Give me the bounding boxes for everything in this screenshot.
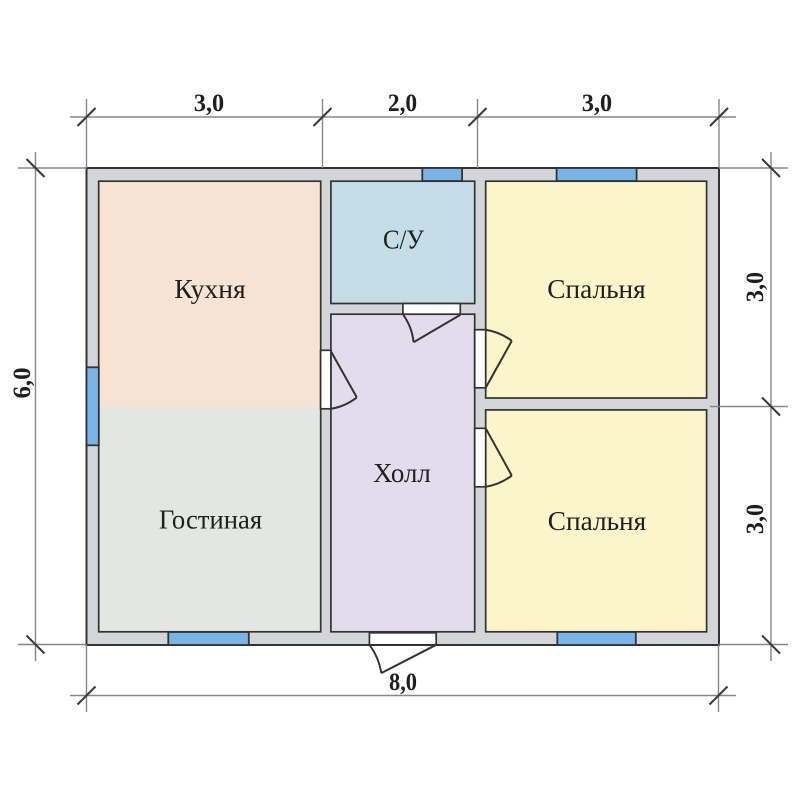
svg-text:Спальня: Спальня — [548, 506, 647, 536]
svg-text:3,0: 3,0 — [742, 504, 769, 534]
svg-text:8,0: 8,0 — [389, 669, 417, 696]
svg-text:Спальня: Спальня — [547, 274, 646, 304]
svg-text:3,0: 3,0 — [742, 272, 769, 302]
svg-text:6,0: 6,0 — [9, 368, 36, 399]
svg-text:2,0: 2,0 — [388, 90, 417, 117]
svg-text:Гостиная: Гостиная — [159, 505, 262, 535]
svg-text:Кухня: Кухня — [174, 274, 246, 304]
svg-text:3,0: 3,0 — [194, 90, 224, 117]
svg-text:3,0: 3,0 — [582, 90, 612, 117]
svg-text:С/У: С/У — [383, 225, 425, 255]
svg-text:Холл: Холл — [373, 458, 431, 488]
